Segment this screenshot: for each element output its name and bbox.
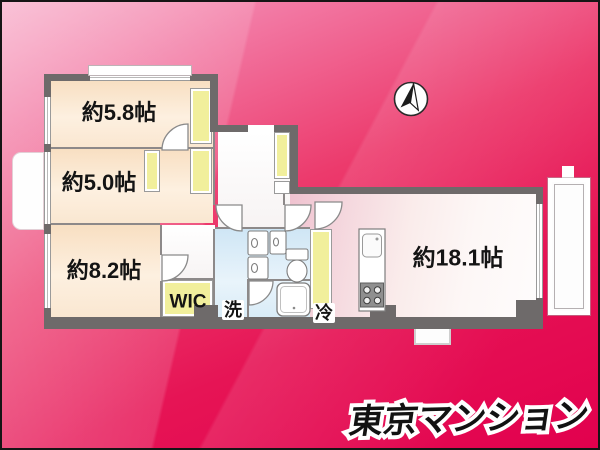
closet [144, 150, 160, 192]
brand-logo: 東京マンション 東京マンション [346, 395, 591, 443]
room-label-5-0: 約5.0帖 [62, 172, 137, 194]
wall [290, 187, 543, 194]
wall [51, 147, 162, 149]
closet [190, 88, 212, 144]
wall [51, 223, 160, 225]
wall [215, 227, 310, 229]
wall-stub [516, 300, 536, 317]
wall [210, 74, 218, 132]
wall [249, 279, 310, 281]
wall-stub [370, 305, 396, 317]
wall [162, 278, 213, 280]
window [536, 204, 543, 298]
room-label-fridge: 冷 [313, 303, 335, 323]
wall [160, 225, 162, 255]
window [44, 234, 51, 308]
wall [290, 125, 298, 194]
entrance-opening [248, 125, 274, 132]
floorplan-flyer: 約5.8帖 約5.0帖 約8.2帖 WIC 洗 冷 約18.1帖 東京マンション… [0, 0, 600, 450]
wall [213, 229, 215, 317]
closet [274, 132, 290, 179]
shoe-cabinet [274, 181, 290, 194]
wall [283, 194, 285, 205]
corridor [160, 225, 215, 281]
window [44, 97, 51, 144]
room-label-5-8: 約5.8帖 [82, 102, 157, 124]
closet [190, 148, 212, 194]
balcony-right [548, 178, 590, 315]
wall [160, 281, 162, 317]
room-label-laundry: 洗 [222, 300, 244, 320]
brand-logo-text: 東京マンション [347, 397, 592, 441]
window [44, 152, 51, 224]
window-recess [88, 65, 192, 76]
room-label-living: 約18.1帖 [413, 247, 504, 270]
wall [44, 317, 543, 329]
compass-north-arrow-icon [395, 82, 428, 116]
room-label-8-2: 約8.2帖 [67, 260, 142, 282]
refrigerator-space [310, 229, 332, 309]
pillar [414, 329, 451, 345]
wall [247, 279, 249, 317]
balcony-left [12, 152, 44, 230]
wall [188, 147, 213, 149]
room-label-wic: WIC [170, 293, 207, 312]
